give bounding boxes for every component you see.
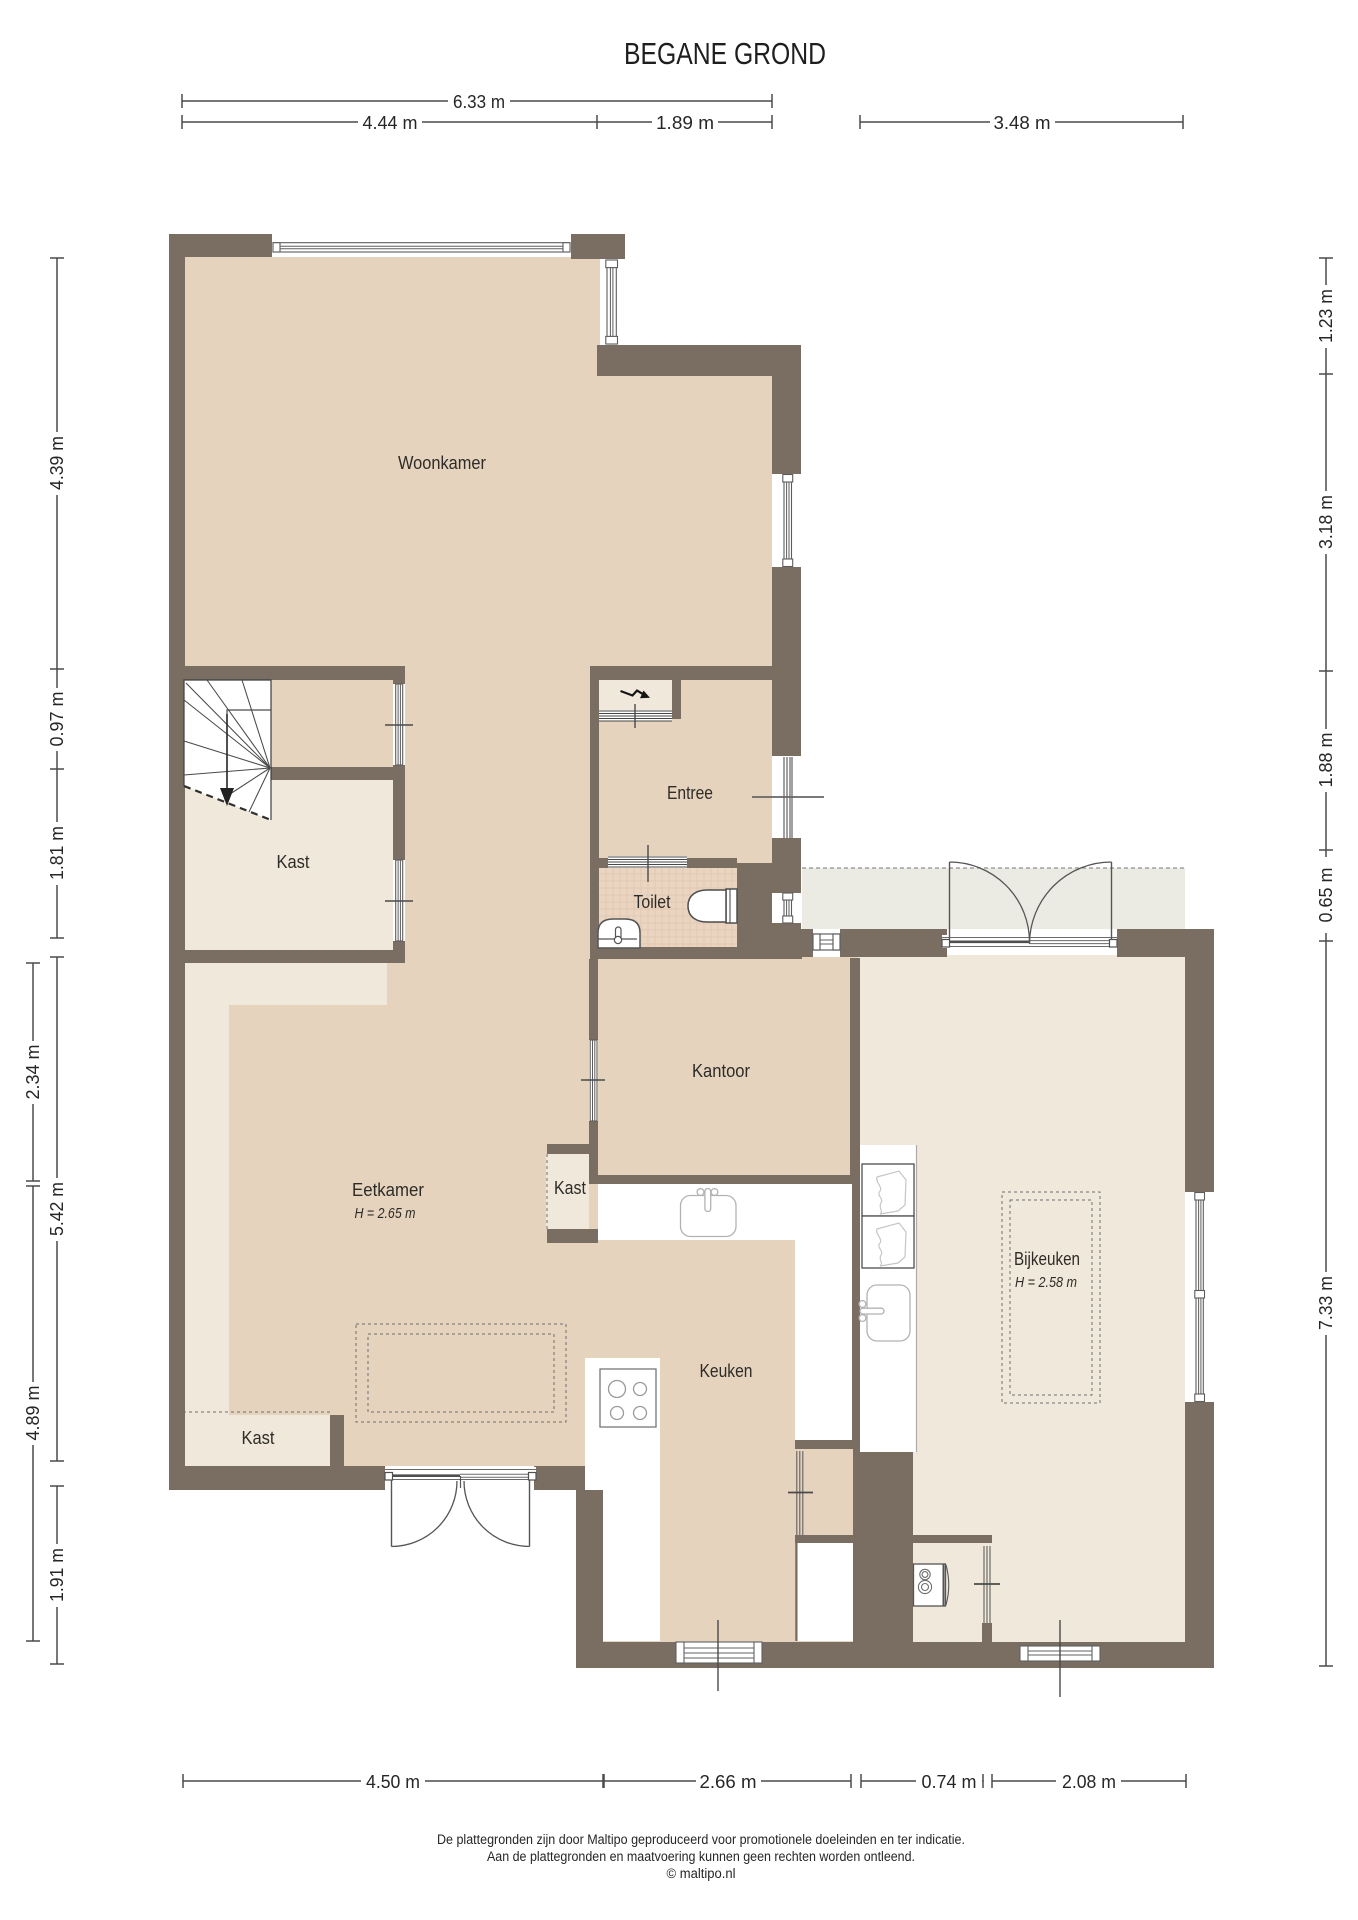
svg-text:BEGANE GROND: BEGANE GROND [624,36,826,71]
svg-text:1.81 m: 1.81 m [47,826,67,880]
svg-text:Kast: Kast [277,852,310,872]
svg-text:© maltipo.nl: © maltipo.nl [667,1866,736,1881]
svg-text:Keuken: Keuken [700,1361,753,1381]
svg-text:Bijkeuken: Bijkeuken [1014,1249,1080,1269]
svg-text:Woonkamer: Woonkamer [398,453,486,473]
svg-text:De plattegronden zijn door Mal: De plattegronden zijn door Maltipo gepro… [437,1832,965,1847]
svg-text:Kast: Kast [242,1428,275,1448]
svg-text:4.44 m: 4.44 m [363,113,418,133]
svg-text:7.33 m: 7.33 m [1316,1276,1336,1330]
svg-text:Aan de plattegronden en maatvo: Aan de plattegronden en maatvoering kunn… [487,1849,915,1864]
svg-text:3.48 m: 3.48 m [994,113,1051,133]
svg-text:2.08 m: 2.08 m [1062,1772,1116,1792]
svg-text:Entree: Entree [667,783,713,803]
svg-text:6.33 m: 6.33 m [453,92,505,112]
svg-text:1.88 m: 1.88 m [1316,733,1336,788]
svg-text:Eetkamer: Eetkamer [352,1180,424,1200]
svg-text:0.74 m: 0.74 m [922,1772,977,1792]
svg-text:1.89 m: 1.89 m [656,113,714,133]
svg-text:Kast: Kast [554,1178,586,1198]
svg-text:4.89 m: 4.89 m [23,1386,43,1441]
svg-text:4.39 m: 4.39 m [47,436,67,490]
svg-text:H = 2.65 m: H = 2.65 m [355,1206,416,1222]
svg-text:2.34 m: 2.34 m [23,1045,43,1100]
svg-text:0.65 m: 0.65 m [1316,868,1336,923]
svg-text:1.23 m: 1.23 m [1316,289,1336,343]
svg-text:Toilet: Toilet [634,892,671,912]
svg-text:H = 2.58 m: H = 2.58 m [1015,1275,1077,1291]
svg-text:0.97 m: 0.97 m [47,692,67,747]
svg-text:5.42 m: 5.42 m [47,1182,67,1236]
svg-text:1.91 m: 1.91 m [47,1548,67,1602]
svg-text:2.66 m: 2.66 m [700,1772,757,1792]
svg-text:3.18 m: 3.18 m [1316,495,1336,549]
svg-text:4.50 m: 4.50 m [366,1772,420,1792]
svg-text:Kantoor: Kantoor [692,1061,750,1081]
